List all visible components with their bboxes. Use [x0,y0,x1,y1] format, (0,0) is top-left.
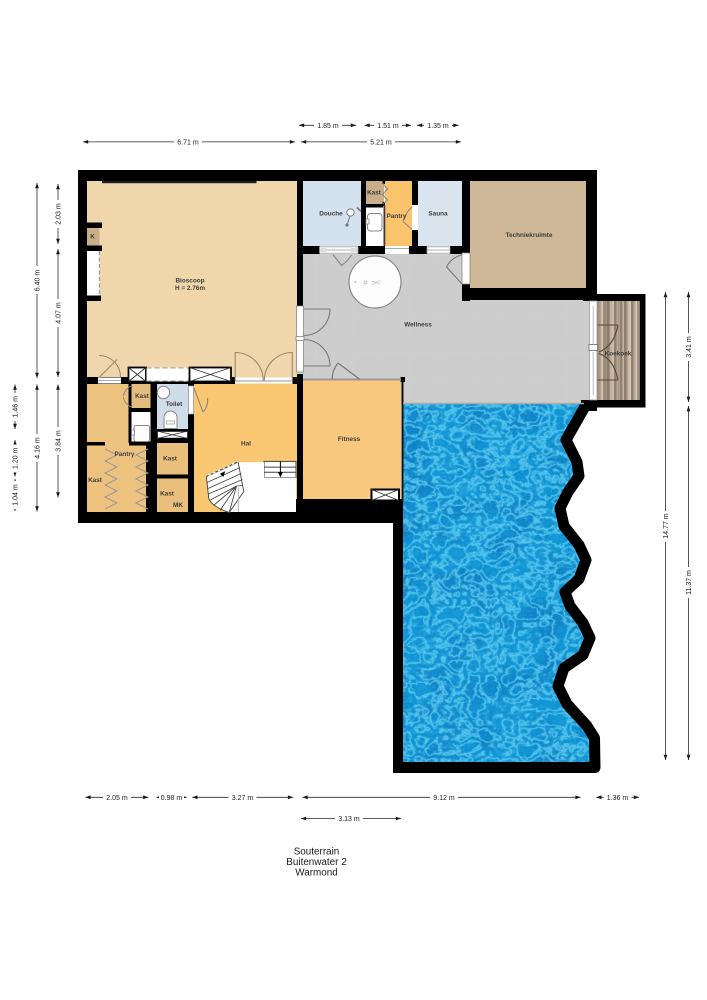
svg-text:Hal: Hal [241,441,251,448]
svg-text:3.27 m: 3.27 m [232,795,254,802]
svg-text:Souterrain: Souterrain [294,847,340,858]
svg-text:2.05 m: 2.05 m [106,795,128,802]
svg-text:1.20 m: 1.20 m [13,447,20,469]
svg-text:2.03 m: 2.03 m [56,203,63,225]
svg-text:0.98 m: 0.98 m [161,795,183,802]
svg-text:Pantry: Pantry [115,451,135,458]
svg-text:Kast: Kast [88,477,103,484]
svg-text:Douche: Douche [319,211,343,218]
svg-text:Koekoek: Koekoek [605,351,632,358]
svg-text:Kast: Kast [367,190,382,197]
svg-text:11.37 m: 11.37 m [686,570,693,595]
svg-text:9.12 m: 9.12 m [433,795,455,802]
svg-text:1.35 m: 1.35 m [427,123,449,130]
svg-text:K: K [90,234,95,241]
svg-text:6.40 m: 6.40 m [35,270,42,292]
svg-text:Wellness: Wellness [404,322,432,329]
svg-text:4.07 m: 4.07 m [56,302,63,324]
svg-text:1.36 m: 1.36 m [607,795,629,802]
svg-text:Warmond: Warmond [295,868,337,879]
svg-text:1.46 m: 1.46 m [13,396,20,418]
svg-text:6.71 m: 6.71 m [177,140,199,147]
svg-text:1.85 m: 1.85 m [317,123,339,130]
svg-text:5.21 m: 5.21 m [370,140,392,147]
svg-text:1.04 m: 1.04 m [13,484,20,506]
svg-text:Pantry: Pantry [387,213,407,220]
svg-text:14.77 m: 14.77 m [663,513,670,538]
svg-text:3.13 m: 3.13 m [338,816,360,823]
svg-text:Kast: Kast [160,491,175,498]
svg-text:Toilet: Toilet [166,401,183,408]
svg-text:H = 2.76m: H = 2.76m [175,285,205,292]
svg-text:MK: MK [173,502,183,509]
svg-text:Kast: Kast [163,456,178,463]
svg-text:3.41 m: 3.41 m [686,336,693,358]
svg-text:3.84 m: 3.84 m [56,430,63,452]
svg-text:Fitness: Fitness [338,436,361,443]
svg-text:Sauna: Sauna [428,211,448,218]
svg-text:Kast: Kast [135,393,150,400]
svg-text:4.16 m: 4.16 m [35,437,42,459]
svg-text:Techniekruimte: Techniekruimte [506,232,553,239]
svg-text:Buitenwater 2: Buitenwater 2 [286,857,346,868]
svg-text:1.51 m: 1.51 m [377,123,399,130]
svg-text:Bioscoop: Bioscoop [175,278,204,285]
